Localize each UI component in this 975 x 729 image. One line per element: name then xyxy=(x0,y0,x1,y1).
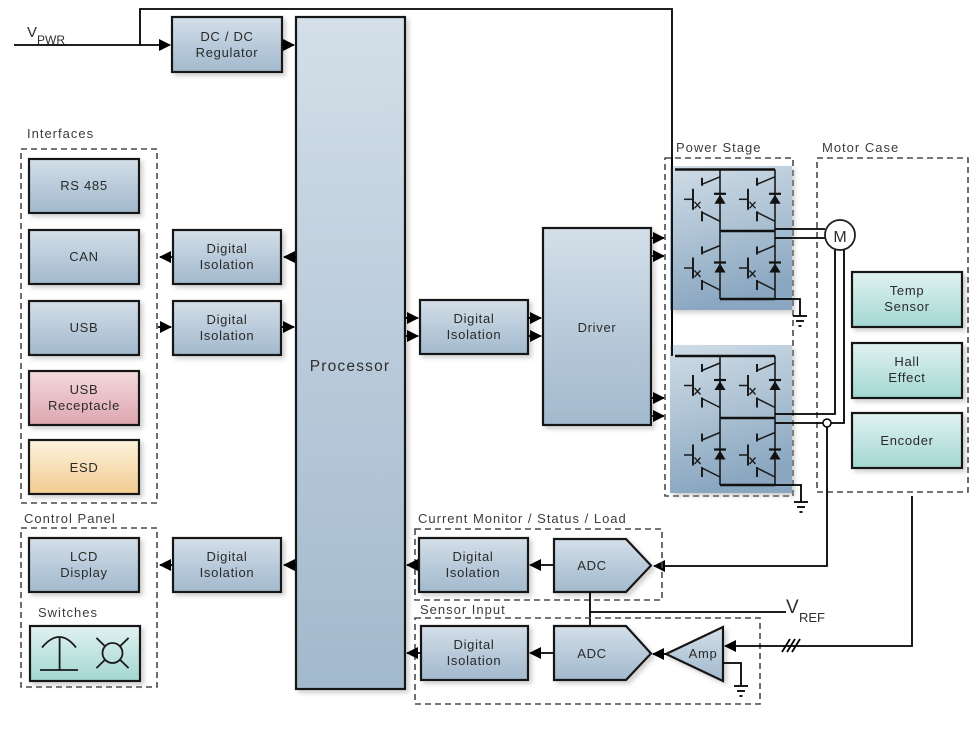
svg-text:RS 485: RS 485 xyxy=(60,178,108,193)
svg-text:Power Stage: Power Stage xyxy=(676,140,761,155)
svg-text:Isolation: Isolation xyxy=(447,327,502,342)
svg-text:Isolation: Isolation xyxy=(447,653,502,668)
svg-text:REF: REF xyxy=(799,610,825,625)
svg-text:CAN: CAN xyxy=(69,249,99,264)
svg-text:Isolation: Isolation xyxy=(200,565,255,580)
svg-text:V: V xyxy=(27,24,37,41)
svg-text:Motor Case: Motor Case xyxy=(822,140,899,155)
svg-text:DC / DC: DC / DC xyxy=(200,29,253,44)
svg-text:Encoder: Encoder xyxy=(880,433,933,448)
svg-text:Isolation: Isolation xyxy=(200,328,255,343)
svg-text:Temp: Temp xyxy=(890,283,925,298)
svg-text:ADC: ADC xyxy=(577,646,607,661)
svg-text:Digital: Digital xyxy=(206,312,247,327)
svg-text:M: M xyxy=(833,229,846,246)
svg-text:Display: Display xyxy=(60,565,108,580)
svg-text:Isolation: Isolation xyxy=(200,257,255,272)
svg-text:Digital: Digital xyxy=(206,549,247,564)
svg-text:USB: USB xyxy=(70,320,99,335)
svg-text:ADC: ADC xyxy=(577,558,607,573)
svg-text:Digital: Digital xyxy=(453,637,494,652)
svg-text:Regulator: Regulator xyxy=(196,45,259,60)
svg-text:USB: USB xyxy=(70,382,99,397)
svg-text:Digital: Digital xyxy=(452,549,493,564)
svg-text:Digital: Digital xyxy=(453,311,494,326)
svg-text:Interfaces: Interfaces xyxy=(27,126,94,141)
svg-text:LCD: LCD xyxy=(70,549,98,564)
svg-text:Hall: Hall xyxy=(894,354,919,369)
svg-text:V: V xyxy=(786,597,799,618)
svg-text:Control Panel: Control Panel xyxy=(24,511,116,526)
svg-text:Digital: Digital xyxy=(206,241,247,256)
svg-text:Isolation: Isolation xyxy=(446,565,501,580)
svg-text:Receptacle: Receptacle xyxy=(48,398,120,413)
svg-text:Sensor Input: Sensor Input xyxy=(420,602,506,617)
svg-text:Sensor: Sensor xyxy=(884,299,929,314)
svg-text:Current Monitor / Status / Loa: Current Monitor / Status / Load xyxy=(418,511,627,526)
svg-text:Effect: Effect xyxy=(888,370,925,385)
svg-text:Amp: Amp xyxy=(689,646,718,661)
svg-text:PWR: PWR xyxy=(37,33,65,47)
svg-text:Switches: Switches xyxy=(38,605,98,620)
svg-text:Driver: Driver xyxy=(578,320,617,335)
svg-text:ESD: ESD xyxy=(70,460,99,475)
svg-text:Processor: Processor xyxy=(310,358,391,375)
